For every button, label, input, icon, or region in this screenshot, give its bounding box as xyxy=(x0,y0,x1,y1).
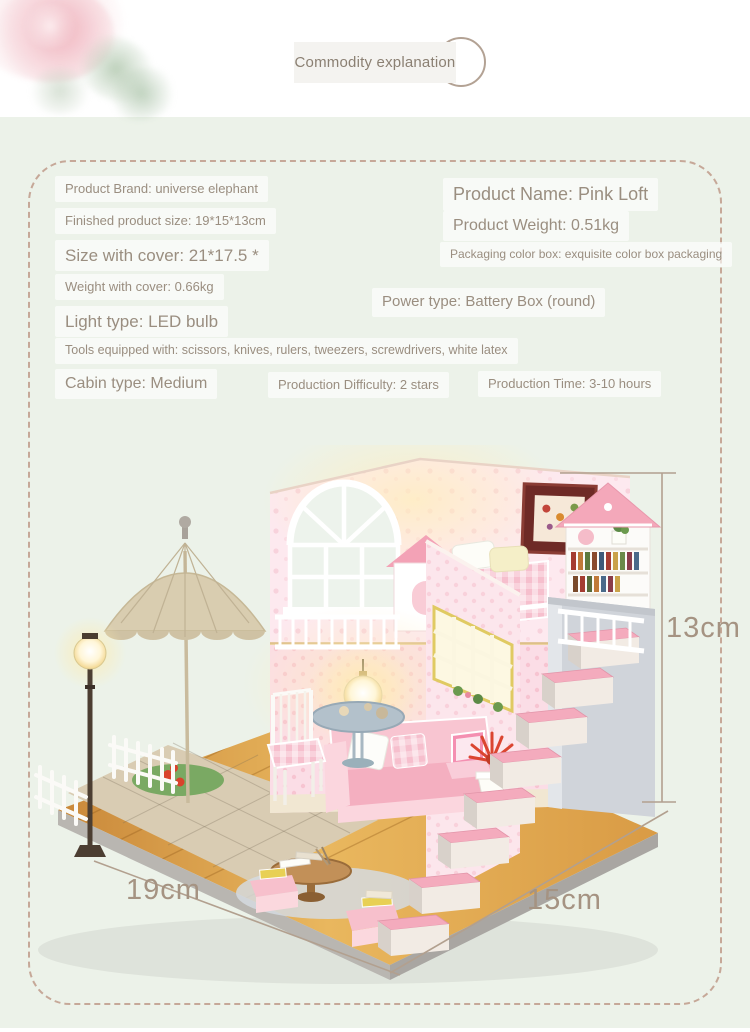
spec-product-name: Product Name: Pink Loft xyxy=(443,178,658,211)
section-title: Commodity explanation xyxy=(294,42,456,83)
rose-leaf xyxy=(64,22,167,116)
spec-light-type: Light type: LED bulb xyxy=(55,306,228,337)
spec-product-weight: Product Weight: 0.51kg xyxy=(443,211,629,241)
spec-packaging: Packaging color box: exquisite color box… xyxy=(440,242,732,267)
rose-leaf xyxy=(28,68,92,114)
dimension-label-width: 15cm xyxy=(527,884,602,917)
dimension-label-depth: 19cm xyxy=(126,874,201,907)
pink-vase xyxy=(578,529,594,545)
spec-size-with-cover: Size with cover: 21*17.5 * xyxy=(55,240,269,271)
spec-power-type: Power type: Battery Box (round) xyxy=(372,288,605,317)
rose-petal xyxy=(0,0,124,82)
rose-petal xyxy=(22,4,78,48)
spec-cabin-type: Cabin type: Medium xyxy=(55,369,217,399)
arched-window xyxy=(283,483,405,611)
spec-difficulty: Production Difficulty: 2 stars xyxy=(268,372,449,398)
product-detail-page: Commodity explanation Product Brand: uni… xyxy=(0,0,750,1032)
spec-weight-with-cover: Weight with cover: 0.66kg xyxy=(55,274,224,300)
spec-brand: Product Brand: universe elephant xyxy=(55,176,268,202)
rose-petal xyxy=(0,0,114,82)
spec-production-time: Production Time: 3-10 hours xyxy=(478,371,661,397)
spec-tools: Tools equipped with: scissors, knives, r… xyxy=(55,338,518,364)
spec-finished-size: Finished product size: 19*15*13cm xyxy=(55,208,276,234)
rose-decoration xyxy=(0,0,168,117)
dimension-label-height: 13cm xyxy=(666,612,741,645)
